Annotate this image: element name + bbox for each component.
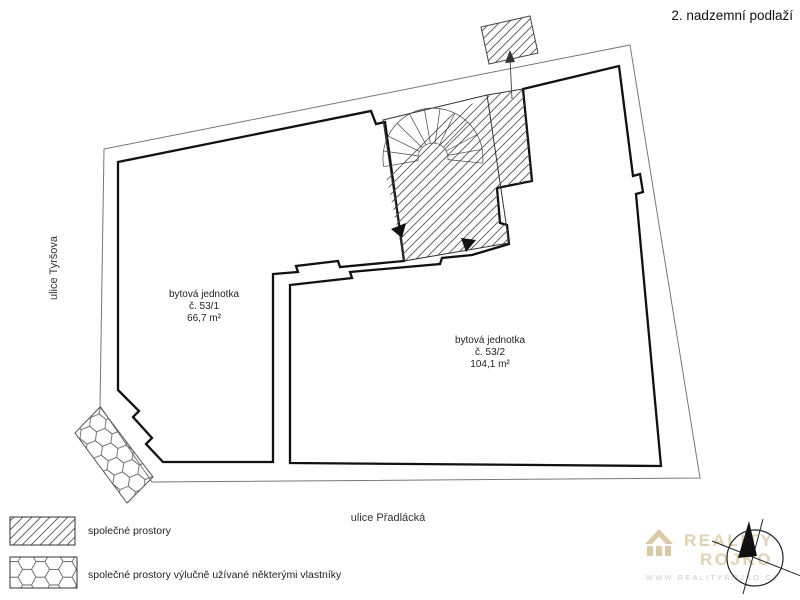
legend-item-exclusive-common-areas: společné prostory výlučně užívané někter…: [10, 557, 342, 588]
legend-item-common-areas: společné prostory: [10, 517, 172, 545]
floor-plan-page: 2. nadzemní podlaží ulice Tyršova ulice …: [0, 0, 800, 600]
brand-watermark: REALITY ROJKO WWW.REALITYROJKO.CZ: [645, 529, 780, 582]
svg-text:66,7 m²: 66,7 m²: [187, 313, 222, 324]
legend: společné prostory společné prostory výlu…: [10, 517, 342, 588]
street-label-bottom: ulice Přadlácká: [351, 512, 426, 524]
svg-text:č. 53/1: č. 53/1: [189, 301, 219, 312]
floor-plan-drawing: 2. nadzemní podlaží ulice Tyršova ulice …: [0, 0, 800, 600]
page-title: 2. nadzemní podlaží: [671, 8, 793, 23]
legend-swatch-hexagon: [10, 557, 77, 588]
svg-text:č. 53/2: č. 53/2: [475, 347, 505, 358]
brand-name-line2: ROJKO: [700, 550, 773, 569]
legend-swatch-diagonal-hatch: [10, 517, 75, 545]
svg-text:bytová jednotka: bytová jednotka: [169, 289, 239, 300]
brand-house-icon: [645, 529, 673, 556]
legend-label: společné prostory: [88, 525, 172, 537]
legend-label: společné prostory výlučně užívané někter…: [88, 569, 342, 581]
svg-text:104,1 m²: 104,1 m²: [470, 359, 510, 370]
svg-text:bytová jednotka: bytová jednotka: [455, 335, 525, 346]
street-label-left: ulice Tyršova: [48, 235, 60, 300]
brand-website: WWW.REALITYROJKO.CZ: [646, 573, 780, 582]
